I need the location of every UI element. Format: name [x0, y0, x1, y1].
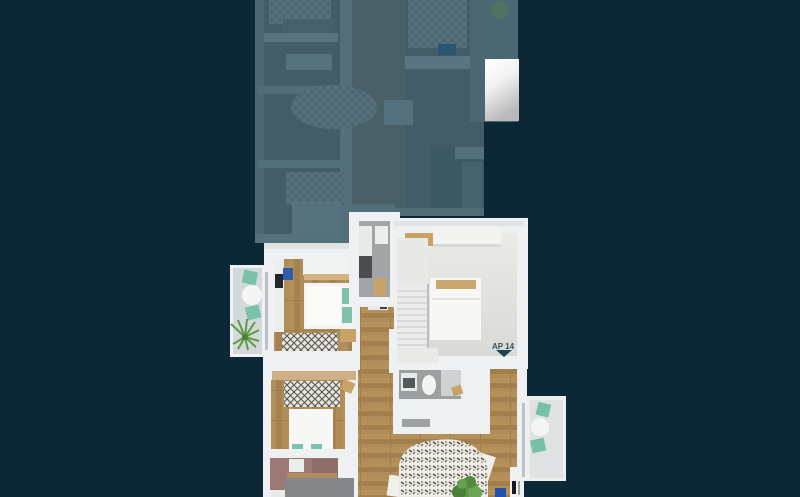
svg-text:AP 14: AP 14	[492, 342, 515, 351]
